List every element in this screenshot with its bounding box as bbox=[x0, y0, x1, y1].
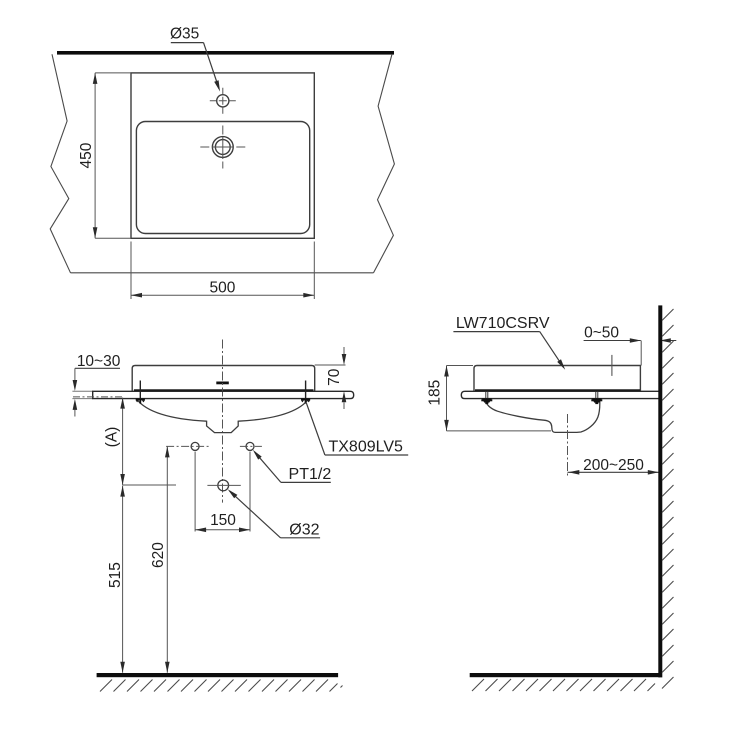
svg-text:Ø35: Ø35 bbox=[170, 25, 199, 42]
svg-text:10~30: 10~30 bbox=[77, 353, 121, 370]
svg-text:TX809LV5: TX809LV5 bbox=[328, 439, 403, 456]
svg-text:0~50: 0~50 bbox=[584, 325, 619, 342]
svg-text:200~250: 200~250 bbox=[583, 457, 644, 474]
svg-text:150: 150 bbox=[210, 512, 236, 529]
svg-text:(A): (A) bbox=[104, 427, 121, 448]
svg-text:500: 500 bbox=[209, 279, 235, 296]
svg-text:70: 70 bbox=[326, 368, 343, 386]
svg-text:185: 185 bbox=[426, 380, 443, 406]
svg-text:PT1/2: PT1/2 bbox=[289, 466, 332, 483]
svg-text:Ø32: Ø32 bbox=[289, 522, 319, 539]
svg-text:LW710CSRV: LW710CSRV bbox=[456, 315, 550, 332]
svg-text:450: 450 bbox=[78, 142, 95, 168]
svg-text:515: 515 bbox=[107, 562, 124, 588]
svg-text:620: 620 bbox=[150, 542, 167, 568]
